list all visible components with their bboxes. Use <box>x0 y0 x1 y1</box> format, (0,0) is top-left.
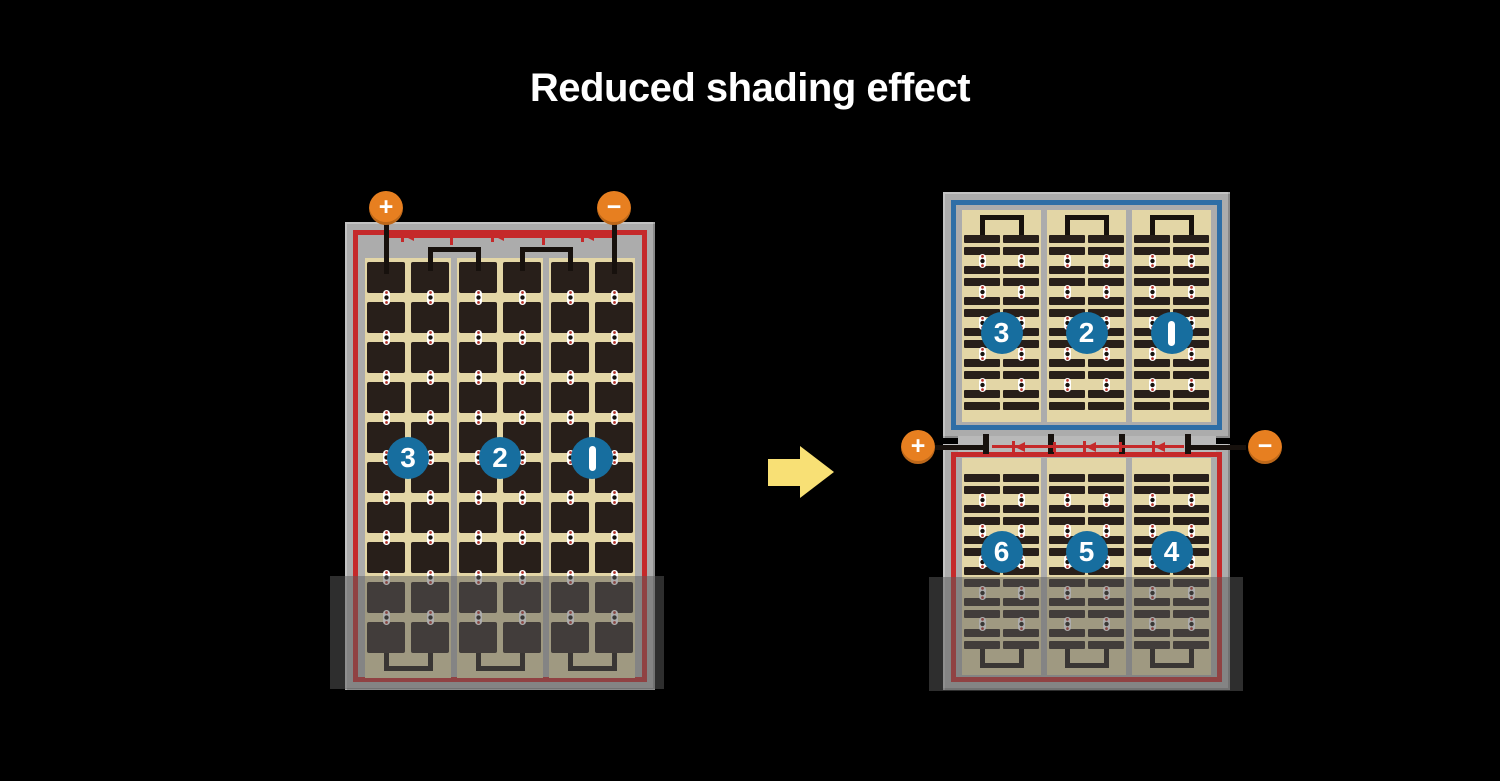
cell-connector <box>383 410 390 425</box>
cell-connector <box>475 530 482 545</box>
cell-connector <box>1064 524 1071 538</box>
page-title: Reduced shading effect <box>0 66 1500 111</box>
string-number-badge: 1 <box>571 437 613 479</box>
cell-connector <box>1149 254 1156 268</box>
cell-connector <box>475 330 482 345</box>
half-cell-bar <box>1003 402 1039 410</box>
circuit-tick <box>1119 442 1122 452</box>
solar-cell <box>551 302 589 333</box>
string-number-badge: 2 <box>479 437 521 479</box>
solar-cell <box>411 542 449 573</box>
solar-cell <box>367 382 405 413</box>
string-jumper-wire <box>520 247 573 252</box>
half-cell-bar <box>1003 474 1039 482</box>
string-number-badge: 1 <box>1151 312 1193 354</box>
cell-connector <box>427 410 434 425</box>
cell-connector <box>1018 378 1025 392</box>
solar-cell <box>459 382 497 413</box>
solar-cell <box>595 502 633 533</box>
string-jumper-leg <box>428 247 433 271</box>
cell-connector <box>1018 493 1025 507</box>
arrow-body <box>768 459 801 486</box>
string-jumper-wire <box>1065 215 1109 220</box>
cell-connector <box>567 370 574 385</box>
cell-connector <box>567 290 574 305</box>
solar-cell <box>503 502 541 533</box>
cell-connector <box>611 490 618 505</box>
half-cell-bar <box>1134 402 1170 410</box>
string-number-badge: 2 <box>1066 312 1108 354</box>
cell-connector <box>1103 254 1110 268</box>
solar-cell <box>367 502 405 533</box>
terminal-symbol: + <box>379 195 394 220</box>
solar-cell <box>551 542 589 573</box>
cell-connector <box>1018 524 1025 538</box>
shading-overlay <box>330 576 664 689</box>
string-jumper-leg <box>568 247 573 271</box>
cell-connector <box>567 530 574 545</box>
half-cell-bar <box>964 235 1000 243</box>
solar-cell <box>595 302 633 333</box>
bypass-diode-icon <box>1015 442 1025 452</box>
plus-terminal: + <box>901 430 935 464</box>
cell-connector <box>1064 378 1071 392</box>
solar-cell <box>367 342 405 373</box>
cell-connector <box>519 370 526 385</box>
cell-connector <box>611 370 618 385</box>
cell-connector <box>1149 285 1156 299</box>
solar-cell <box>459 502 497 533</box>
cell-connector <box>1188 285 1195 299</box>
half-cell-bar <box>1049 235 1085 243</box>
terminal-symbol: − <box>607 195 622 220</box>
solar-cell <box>411 382 449 413</box>
solar-cell <box>595 342 633 373</box>
half-cell-bar <box>1003 235 1039 243</box>
string-jumper-wire <box>1150 215 1194 220</box>
string-number-badge: 6 <box>981 531 1023 573</box>
cell-connector <box>383 330 390 345</box>
cell-connector <box>383 370 390 385</box>
solar-cell <box>367 302 405 333</box>
cell-connector <box>427 330 434 345</box>
half-cell-bar <box>1173 235 1209 243</box>
string-number-badge: 4 <box>1151 531 1193 573</box>
cell-connector <box>1149 493 1156 507</box>
cell-connector <box>427 490 434 505</box>
cell-connector <box>475 410 482 425</box>
solar-cell <box>459 302 497 333</box>
half-cell-bar <box>1049 402 1085 410</box>
cell-connector <box>611 410 618 425</box>
cell-connector <box>1149 378 1156 392</box>
cell-connector <box>475 290 482 305</box>
cell-connector <box>1149 524 1156 538</box>
cell-connector <box>519 410 526 425</box>
bypass-diode-icon <box>584 231 594 241</box>
shading-overlay <box>929 577 1243 691</box>
half-cell-bar <box>1173 402 1209 410</box>
cell-connector <box>1064 347 1071 361</box>
cell-connector <box>1064 285 1071 299</box>
cell-connector <box>1064 254 1071 268</box>
cell-connector <box>1103 347 1110 361</box>
terminal-symbol: + <box>911 434 926 459</box>
solar-cell <box>503 302 541 333</box>
arrow-head <box>800 446 834 498</box>
cell-connector <box>427 530 434 545</box>
cell-connector <box>519 290 526 305</box>
terminal-wire <box>1186 445 1246 450</box>
string-jumper-wire <box>428 247 481 252</box>
solar-cell <box>503 342 541 373</box>
cell-connector <box>611 330 618 345</box>
cell-connector <box>567 490 574 505</box>
cell-connector <box>1103 285 1110 299</box>
solar-cell <box>595 542 633 573</box>
string-number-badge: 3 <box>387 437 429 479</box>
half-cell-bar <box>1088 474 1124 482</box>
cell-connector <box>979 378 986 392</box>
minus-terminal: − <box>597 191 631 225</box>
half-cell-bar <box>964 402 1000 410</box>
cell-connector <box>383 290 390 305</box>
cell-connector <box>567 410 574 425</box>
cell-connector <box>979 254 986 268</box>
solar-cell <box>551 342 589 373</box>
circuit-tick <box>1053 442 1056 452</box>
cell-connector <box>1018 254 1025 268</box>
solar-cell <box>411 342 449 373</box>
string-jumper-leg <box>520 247 525 271</box>
transition-arrow-icon <box>768 446 834 498</box>
bypass-diode-icon <box>404 231 414 241</box>
solar-cell <box>503 382 541 413</box>
cell-connector <box>427 290 434 305</box>
terminal-wire <box>930 445 988 450</box>
cell-connector <box>611 290 618 305</box>
solar-cell <box>459 542 497 573</box>
diagram-stage: Reduced shading effect 321+−321654+− <box>0 0 1500 781</box>
cell-connector <box>979 493 986 507</box>
cell-connector <box>519 330 526 345</box>
after-module-top-frame: 321 <box>943 192 1230 438</box>
cell-connector <box>567 330 574 345</box>
bypass-diode-icon <box>1155 442 1165 452</box>
solar-cell <box>551 382 589 413</box>
cell-connector <box>383 490 390 505</box>
half-cell-bar <box>1134 235 1170 243</box>
cell-connector <box>1064 493 1071 507</box>
half-cell-bar <box>964 474 1000 482</box>
cell-connector <box>611 530 618 545</box>
circuit-tick <box>450 235 453 245</box>
cell-connector <box>1018 285 1025 299</box>
cell-connector <box>519 530 526 545</box>
solar-cell <box>551 502 589 533</box>
solar-cell <box>503 542 541 573</box>
terminal-symbol: − <box>1258 434 1273 459</box>
string-number-badge: 5 <box>1066 531 1108 573</box>
cell-connector <box>1188 524 1195 538</box>
half-cell-bar <box>1049 474 1085 482</box>
cell-connector <box>1103 493 1110 507</box>
cell-connector <box>1188 378 1195 392</box>
cell-connector <box>475 490 482 505</box>
cell-connector <box>519 490 526 505</box>
cell-connector <box>383 530 390 545</box>
half-cell-bar <box>1173 474 1209 482</box>
cell-connector <box>1188 347 1195 361</box>
cell-connector <box>1103 378 1110 392</box>
minus-terminal: − <box>1248 430 1282 464</box>
solar-cell <box>411 302 449 333</box>
cell-connector <box>1188 254 1195 268</box>
solar-cell <box>459 342 497 373</box>
cell-connector <box>427 370 434 385</box>
cell-connector <box>979 285 986 299</box>
string-jumper-wire <box>980 215 1024 220</box>
half-cell-bar <box>1088 402 1124 410</box>
cell-connector <box>1149 347 1156 361</box>
string-jumper-leg <box>476 247 481 271</box>
solar-cell <box>411 502 449 533</box>
half-cell-bar <box>1134 474 1170 482</box>
cell-connector <box>979 524 986 538</box>
circuit-tick <box>542 235 545 245</box>
plus-terminal: + <box>369 191 403 225</box>
cell-connector <box>1103 524 1110 538</box>
cell-connector <box>1188 493 1195 507</box>
solar-cell <box>367 542 405 573</box>
bypass-diode-icon <box>1086 442 1096 452</box>
cell-connector <box>475 370 482 385</box>
solar-cell <box>595 382 633 413</box>
half-cell-bar <box>1088 235 1124 243</box>
string-number-badge: 3 <box>981 312 1023 354</box>
cell-connector <box>979 347 986 361</box>
bypass-diode-icon <box>494 231 504 241</box>
cell-connector <box>1018 347 1025 361</box>
